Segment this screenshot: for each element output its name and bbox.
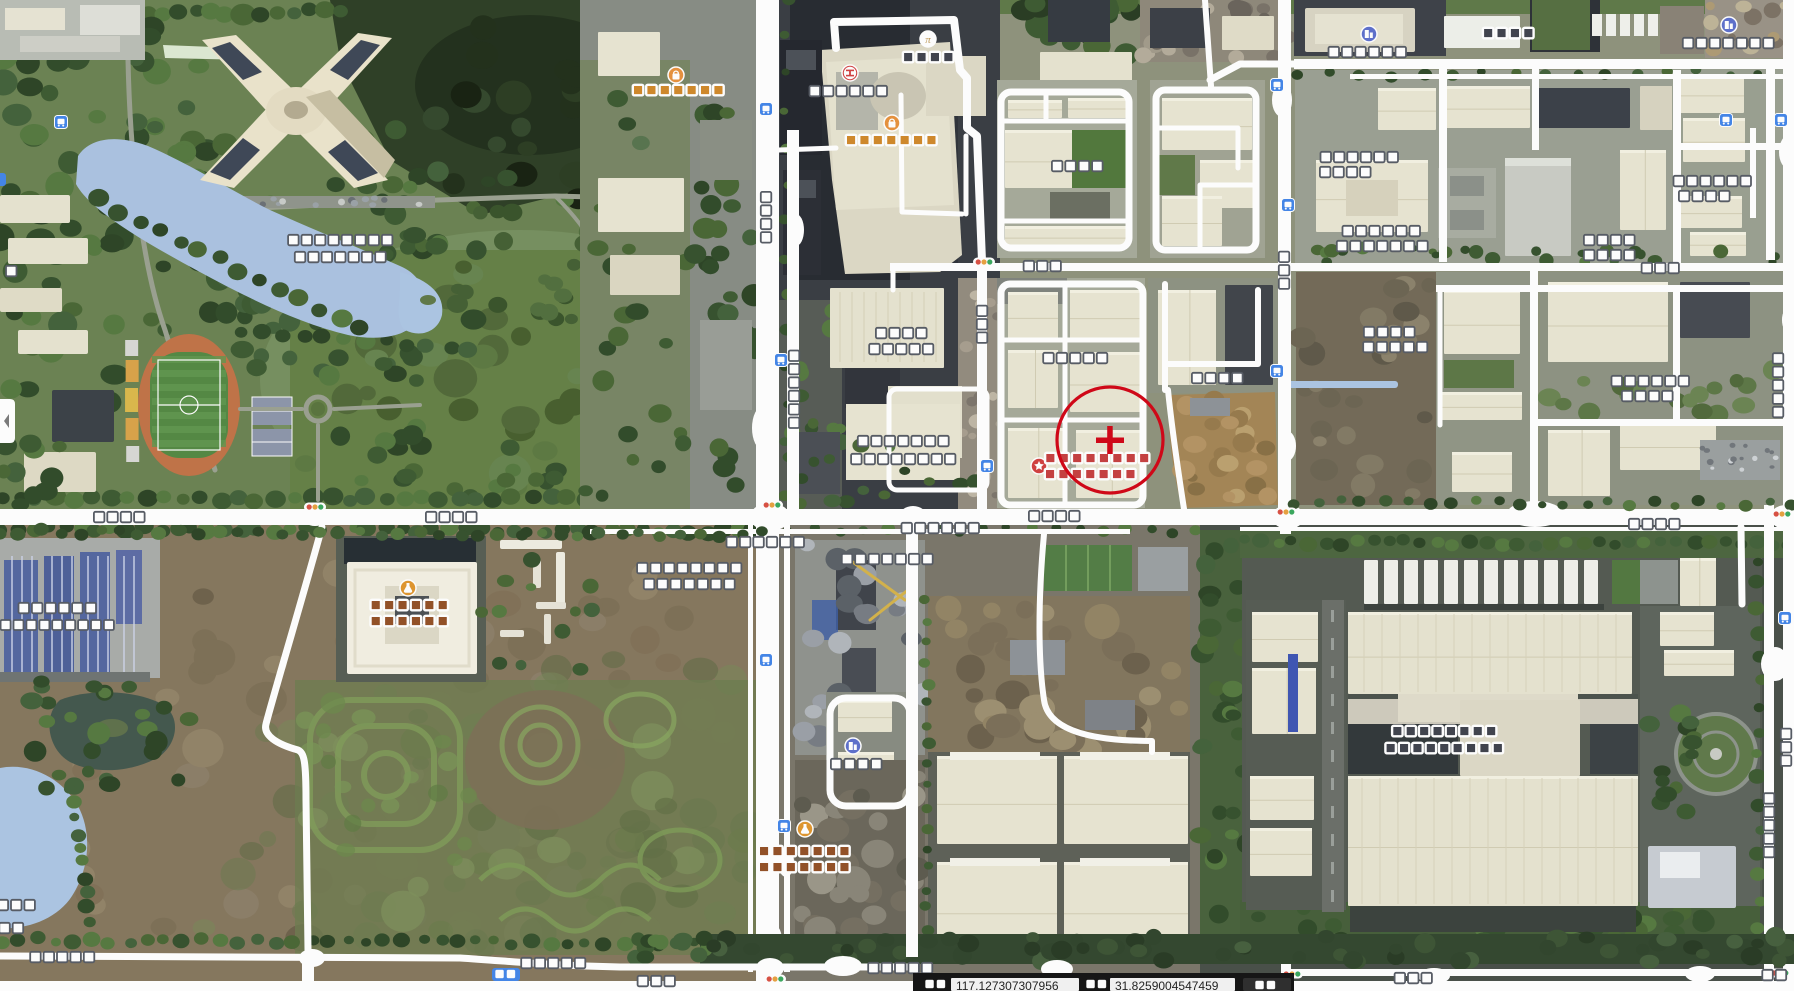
svg-text:117.127307307956: 117.127307307956 [956,979,1059,991]
svg-text:π: π [925,34,931,46]
svg-text:31.8259004547459: 31.8259004547459 [1115,979,1219,991]
